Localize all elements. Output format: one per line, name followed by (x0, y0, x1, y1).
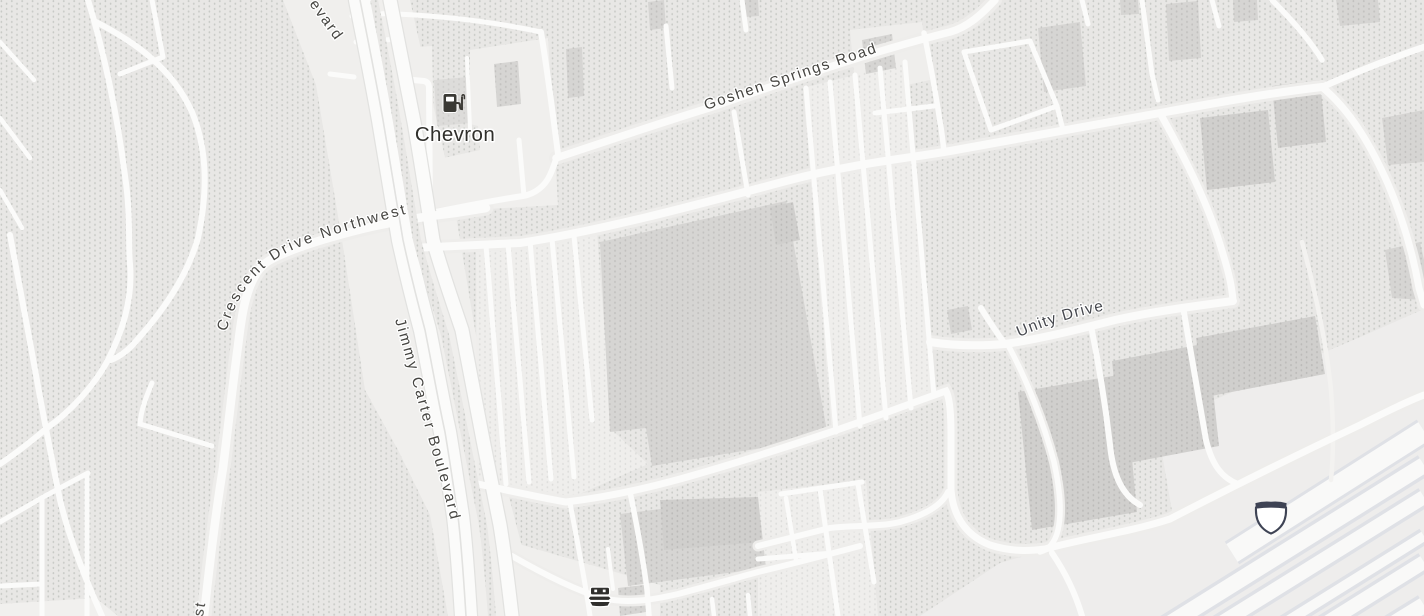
svg-text:st: st (190, 600, 209, 616)
svg-text:Chevron: Chevron (415, 123, 495, 146)
